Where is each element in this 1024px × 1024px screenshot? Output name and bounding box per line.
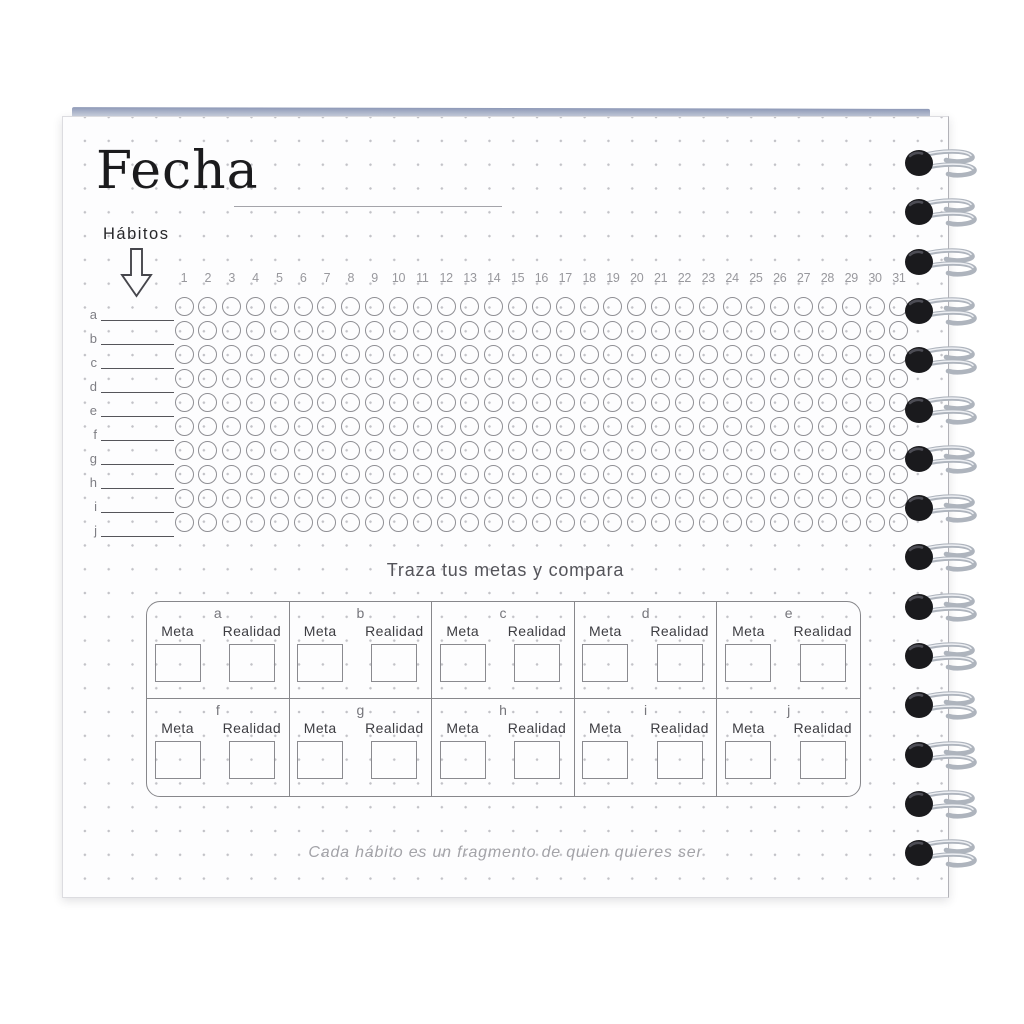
day-circle[interactable] [627,489,646,508]
day-circle[interactable] [508,321,527,340]
day-circle[interactable] [770,489,789,508]
day-circle[interactable] [317,441,336,460]
day-circle[interactable] [627,297,646,316]
day-circle[interactable] [651,465,670,484]
day-circle[interactable] [580,393,599,412]
day-circle[interactable] [675,345,694,364]
day-circle[interactable] [866,417,885,436]
day-circle[interactable] [699,489,718,508]
day-circle[interactable] [866,297,885,316]
day-circle[interactable] [556,489,575,508]
day-circle[interactable] [866,489,885,508]
day-circle[interactable] [365,321,384,340]
day-circle[interactable] [246,417,265,436]
day-circle[interactable] [198,489,217,508]
day-circle[interactable] [603,393,622,412]
day-circle[interactable] [794,393,813,412]
day-circle[interactable] [317,393,336,412]
day-circle[interactable] [294,393,313,412]
day-circle[interactable] [675,441,694,460]
day-circle[interactable] [175,297,194,316]
day-circle[interactable] [175,513,194,532]
day-circle[interactable] [437,297,456,316]
day-circle[interactable] [866,441,885,460]
day-circle[interactable] [460,417,479,436]
day-circle[interactable] [651,345,670,364]
day-circle[interactable] [794,489,813,508]
day-circle[interactable] [460,489,479,508]
day-circle[interactable] [866,513,885,532]
day-circle[interactable] [222,417,241,436]
day-circle[interactable] [770,417,789,436]
day-circle[interactable] [246,465,265,484]
day-circle[interactable] [341,393,360,412]
realidad-box[interactable] [657,741,703,779]
day-circle[interactable] [699,345,718,364]
day-circle[interactable] [508,297,527,316]
day-circle[interactable] [341,369,360,388]
meta-box[interactable] [725,741,771,779]
day-circle[interactable] [651,297,670,316]
day-circle[interactable] [842,489,861,508]
day-circle[interactable] [508,345,527,364]
day-circle[interactable] [270,441,289,460]
day-circle[interactable] [389,417,408,436]
day-circle[interactable] [866,393,885,412]
day-circle[interactable] [603,513,622,532]
day-circle[interactable] [580,465,599,484]
day-circle[interactable] [437,513,456,532]
day-circle[interactable] [603,369,622,388]
day-circle[interactable] [294,321,313,340]
day-circle[interactable] [651,441,670,460]
day-circle[interactable] [460,321,479,340]
day-circle[interactable] [365,465,384,484]
day-circle[interactable] [699,321,718,340]
day-circle[interactable] [556,393,575,412]
day-circle[interactable] [222,345,241,364]
day-circle[interactable] [532,321,551,340]
realidad-box[interactable] [229,741,275,779]
day-circle[interactable] [818,393,837,412]
day-circle[interactable] [222,513,241,532]
day-circle[interactable] [508,369,527,388]
day-circle[interactable] [365,369,384,388]
day-circle[interactable] [746,441,765,460]
day-circle[interactable] [794,369,813,388]
day-circle[interactable] [699,297,718,316]
habit-name-line[interactable] [101,392,174,393]
day-circle[interactable] [246,321,265,340]
day-circle[interactable] [341,441,360,460]
day-circle[interactable] [627,393,646,412]
day-circle[interactable] [770,465,789,484]
day-circle[interactable] [484,513,503,532]
day-circle[interactable] [627,369,646,388]
day-circle[interactable] [389,369,408,388]
day-circle[interactable] [699,393,718,412]
habit-name-line[interactable] [101,320,174,321]
day-circle[interactable] [770,441,789,460]
day-circle[interactable] [842,465,861,484]
day-circle[interactable] [794,417,813,436]
day-circle[interactable] [484,393,503,412]
day-circle[interactable] [651,393,670,412]
day-circle[interactable] [294,441,313,460]
meta-box[interactable] [725,644,771,682]
day-circle[interactable] [651,321,670,340]
day-circle[interactable] [222,369,241,388]
day-circle[interactable] [603,441,622,460]
day-circle[interactable] [627,441,646,460]
day-circle[interactable] [198,417,217,436]
day-circle[interactable] [460,297,479,316]
day-circle[interactable] [270,417,289,436]
meta-box[interactable] [582,741,628,779]
day-circle[interactable] [603,297,622,316]
day-circle[interactable] [270,489,289,508]
day-circle[interactable] [675,465,694,484]
day-circle[interactable] [532,441,551,460]
day-circle[interactable] [222,465,241,484]
day-circle[interactable] [317,465,336,484]
day-circle[interactable] [484,441,503,460]
day-circle[interactable] [437,345,456,364]
day-circle[interactable] [389,465,408,484]
day-circle[interactable] [723,369,742,388]
day-circle[interactable] [723,465,742,484]
day-circle[interactable] [818,513,837,532]
day-circle[interactable] [198,441,217,460]
day-circle[interactable] [651,417,670,436]
day-circle[interactable] [365,489,384,508]
day-circle[interactable] [294,417,313,436]
day-circle[interactable] [794,297,813,316]
day-circle[interactable] [675,393,694,412]
day-circle[interactable] [746,417,765,436]
day-circle[interactable] [341,489,360,508]
habit-name-line[interactable] [101,488,174,489]
day-circle[interactable] [389,345,408,364]
day-circle[interactable] [317,369,336,388]
meta-box[interactable] [297,741,343,779]
day-circle[interactable] [699,369,718,388]
day-circle[interactable] [270,393,289,412]
day-circle[interactable] [222,489,241,508]
day-circle[interactable] [603,489,622,508]
day-circle[interactable] [413,321,432,340]
day-circle[interactable] [818,489,837,508]
day-circle[interactable] [484,345,503,364]
day-circle[interactable] [437,489,456,508]
realidad-box[interactable] [229,644,275,682]
day-circle[interactable] [175,369,194,388]
meta-box[interactable] [155,741,201,779]
day-circle[interactable] [270,321,289,340]
day-circle[interactable] [842,297,861,316]
day-circle[interactable] [842,345,861,364]
day-circle[interactable] [413,393,432,412]
day-circle[interactable] [413,417,432,436]
day-circle[interactable] [842,417,861,436]
day-circle[interactable] [222,321,241,340]
day-circle[interactable] [699,441,718,460]
day-circle[interactable] [770,345,789,364]
day-circle[interactable] [294,489,313,508]
day-circle[interactable] [746,345,765,364]
day-circle[interactable] [365,513,384,532]
day-circle[interactable] [627,513,646,532]
day-circle[interactable] [532,369,551,388]
day-circle[interactable] [675,297,694,316]
day-circle[interactable] [770,393,789,412]
day-circle[interactable] [675,321,694,340]
realidad-box[interactable] [657,644,703,682]
day-circle[interactable] [580,297,599,316]
day-circle[interactable] [532,417,551,436]
day-circle[interactable] [723,417,742,436]
date-line[interactable] [234,206,502,207]
day-circle[interactable] [175,417,194,436]
day-circle[interactable] [294,297,313,316]
day-circle[interactable] [294,465,313,484]
day-circle[interactable] [508,465,527,484]
day-circle[interactable] [532,513,551,532]
day-circle[interactable] [794,465,813,484]
day-circle[interactable] [270,465,289,484]
day-circle[interactable] [580,369,599,388]
realidad-box[interactable] [514,741,560,779]
day-circle[interactable] [198,393,217,412]
habit-name-line[interactable] [101,536,174,537]
day-circle[interactable] [175,489,194,508]
day-circle[interactable] [746,513,765,532]
day-circle[interactable] [508,393,527,412]
day-circle[interactable] [532,297,551,316]
day-circle[interactable] [603,417,622,436]
day-circle[interactable] [603,465,622,484]
day-circle[interactable] [317,513,336,532]
day-circle[interactable] [365,441,384,460]
day-circle[interactable] [770,513,789,532]
day-circle[interactable] [842,441,861,460]
meta-box[interactable] [582,644,628,682]
day-circle[interactable] [175,441,194,460]
day-circle[interactable] [175,465,194,484]
day-circle[interactable] [651,369,670,388]
day-circle[interactable] [175,345,194,364]
day-circle[interactable] [389,441,408,460]
day-circle[interactable] [580,417,599,436]
day-circle[interactable] [746,465,765,484]
day-circle[interactable] [365,345,384,364]
day-circle[interactable] [389,393,408,412]
day-circle[interactable] [460,465,479,484]
day-circle[interactable] [508,513,527,532]
day-circle[interactable] [723,489,742,508]
day-circle[interactable] [437,441,456,460]
day-circle[interactable] [460,393,479,412]
day-circle[interactable] [389,513,408,532]
day-circle[interactable] [866,345,885,364]
day-circle[interactable] [818,441,837,460]
day-circle[interactable] [317,297,336,316]
day-circle[interactable] [746,369,765,388]
day-circle[interactable] [270,513,289,532]
day-circle[interactable] [556,369,575,388]
day-circle[interactable] [532,345,551,364]
realidad-box[interactable] [371,644,417,682]
day-circle[interactable] [437,393,456,412]
day-circle[interactable] [699,417,718,436]
day-circle[interactable] [675,513,694,532]
day-circle[interactable] [246,393,265,412]
day-circle[interactable] [270,345,289,364]
day-circle[interactable] [794,321,813,340]
day-circle[interactable] [413,369,432,388]
day-circle[interactable] [389,489,408,508]
day-circle[interactable] [437,321,456,340]
day-circle[interactable] [723,345,742,364]
day-circle[interactable] [532,489,551,508]
day-circle[interactable] [484,321,503,340]
meta-box[interactable] [440,741,486,779]
day-circle[interactable] [294,369,313,388]
day-circle[interactable] [651,513,670,532]
day-circle[interactable] [675,369,694,388]
day-circle[interactable] [746,393,765,412]
day-circle[interactable] [317,345,336,364]
day-circle[interactable] [198,297,217,316]
day-circle[interactable] [556,513,575,532]
day-circle[interactable] [198,321,217,340]
day-circle[interactable] [198,513,217,532]
day-circle[interactable] [723,321,742,340]
day-circle[interactable] [222,393,241,412]
day-circle[interactable] [580,489,599,508]
day-circle[interactable] [580,345,599,364]
day-circle[interactable] [460,345,479,364]
day-circle[interactable] [723,297,742,316]
habit-name-line[interactable] [101,344,174,345]
day-circle[interactable] [246,345,265,364]
day-circle[interactable] [484,297,503,316]
day-circle[interactable] [818,465,837,484]
day-circle[interactable] [484,369,503,388]
day-circle[interactable] [341,513,360,532]
day-circle[interactable] [746,489,765,508]
day-circle[interactable] [413,513,432,532]
day-circle[interactable] [413,465,432,484]
day-circle[interactable] [341,321,360,340]
day-circle[interactable] [246,369,265,388]
meta-box[interactable] [297,644,343,682]
day-circle[interactable] [246,513,265,532]
day-circle[interactable] [866,465,885,484]
day-circle[interactable] [365,297,384,316]
day-circle[interactable] [770,321,789,340]
day-circle[interactable] [556,441,575,460]
day-circle[interactable] [508,489,527,508]
day-circle[interactable] [508,441,527,460]
habit-name-line[interactable] [101,512,174,513]
realidad-box[interactable] [371,741,417,779]
day-circle[interactable] [341,297,360,316]
day-circle[interactable] [198,345,217,364]
day-circle[interactable] [794,345,813,364]
realidad-box[interactable] [800,741,846,779]
day-circle[interactable] [651,489,670,508]
day-circle[interactable] [270,297,289,316]
day-circle[interactable] [723,393,742,412]
day-circle[interactable] [175,393,194,412]
day-circle[interactable] [175,321,194,340]
day-circle[interactable] [746,297,765,316]
day-circle[interactable] [627,321,646,340]
day-circle[interactable] [437,369,456,388]
day-circle[interactable] [842,369,861,388]
day-circle[interactable] [556,321,575,340]
day-circle[interactable] [603,321,622,340]
day-circle[interactable] [389,297,408,316]
day-circle[interactable] [627,345,646,364]
day-circle[interactable] [699,465,718,484]
day-circle[interactable] [460,513,479,532]
day-circle[interactable] [317,489,336,508]
meta-box[interactable] [440,644,486,682]
day-circle[interactable] [413,297,432,316]
day-circle[interactable] [484,417,503,436]
day-circle[interactable] [532,465,551,484]
day-circle[interactable] [818,417,837,436]
day-circle[interactable] [556,345,575,364]
day-circle[interactable] [198,465,217,484]
day-circle[interactable] [341,465,360,484]
day-circle[interactable] [317,417,336,436]
day-circle[interactable] [460,441,479,460]
day-circle[interactable] [818,345,837,364]
realidad-box[interactable] [514,644,560,682]
day-circle[interactable] [580,441,599,460]
day-circle[interactable] [794,513,813,532]
day-circle[interactable] [723,513,742,532]
day-circle[interactable] [770,369,789,388]
day-circle[interactable] [222,297,241,316]
habit-name-line[interactable] [101,416,174,417]
day-circle[interactable] [675,489,694,508]
day-circle[interactable] [508,417,527,436]
day-circle[interactable] [341,345,360,364]
day-circle[interactable] [675,417,694,436]
day-circle[interactable] [460,369,479,388]
day-circle[interactable] [413,489,432,508]
day-circle[interactable] [484,489,503,508]
day-circle[interactable] [842,393,861,412]
day-circle[interactable] [294,345,313,364]
day-circle[interactable] [556,465,575,484]
day-circle[interactable] [413,441,432,460]
habit-name-line[interactable] [101,464,174,465]
day-circle[interactable] [270,369,289,388]
day-circle[interactable] [341,417,360,436]
day-circle[interactable] [198,369,217,388]
day-circle[interactable] [246,489,265,508]
habit-name-line[interactable] [101,440,174,441]
day-circle[interactable] [770,297,789,316]
day-circle[interactable] [746,321,765,340]
day-circle[interactable] [389,321,408,340]
day-circle[interactable] [818,369,837,388]
